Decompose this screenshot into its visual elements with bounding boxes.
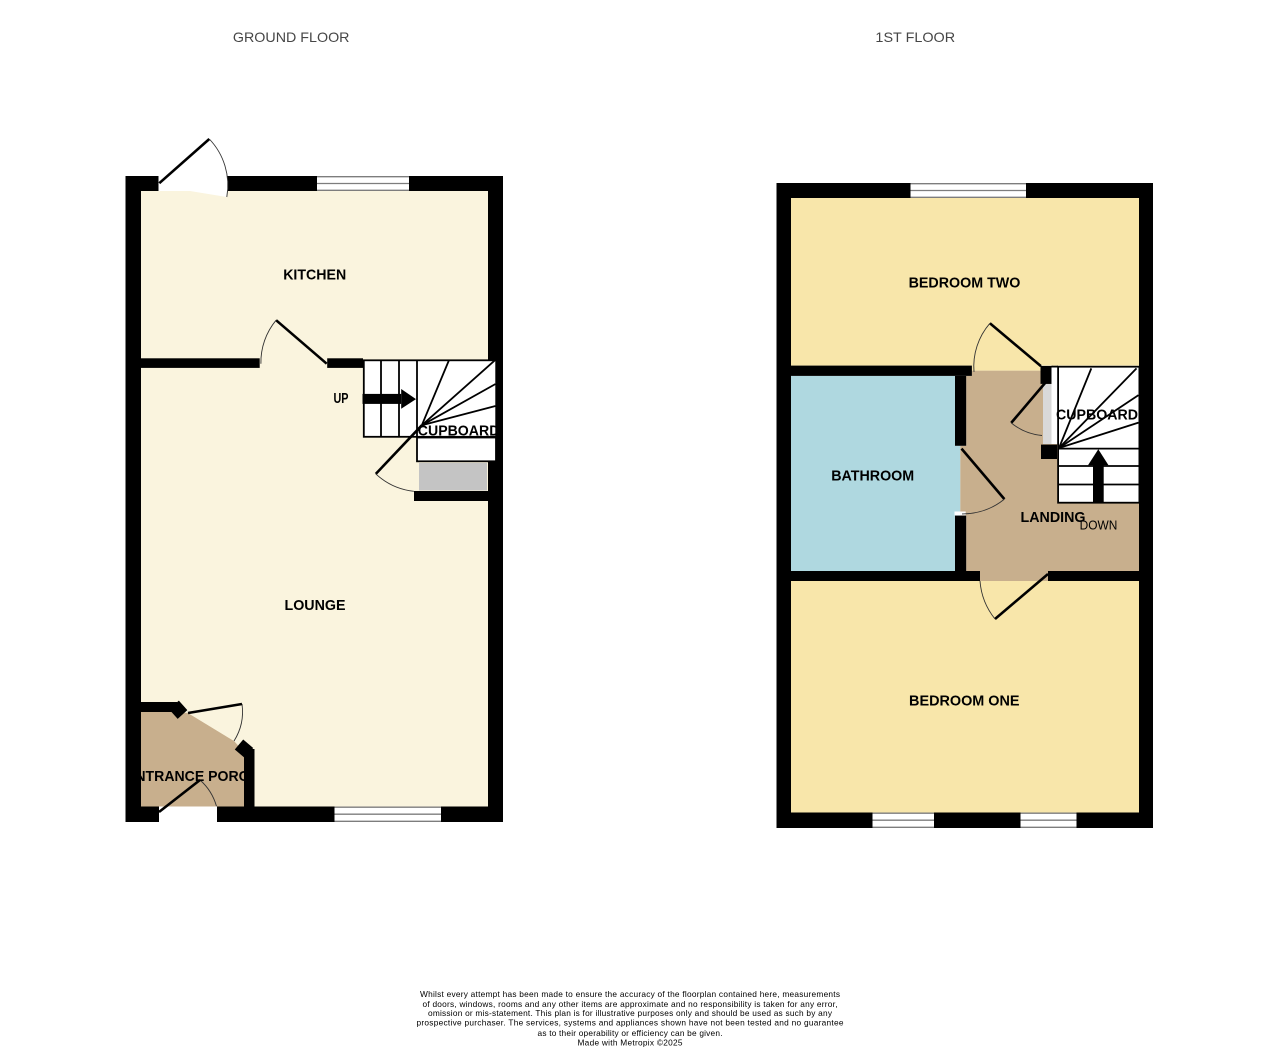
svg-text:KITCHEN: KITCHEN <box>283 267 346 284</box>
svg-text:CUPBOARD: CUPBOARD <box>418 423 500 440</box>
svg-text:1ST FLOOR: 1ST FLOOR <box>875 29 955 45</box>
svg-text:GROUND FLOOR: GROUND FLOOR <box>233 29 350 45</box>
svg-text:prospective purchaser. The ser: prospective purchaser. The services, sys… <box>417 1018 844 1028</box>
svg-text:BATHROOM: BATHROOM <box>831 467 914 484</box>
svg-text:LOUNGE: LOUNGE <box>285 597 346 614</box>
svg-text:omission or mis-statement. Thi: omission or mis-statement. This plan is … <box>428 1008 833 1018</box>
svg-text:BEDROOM TWO: BEDROOM TWO <box>909 274 1021 291</box>
svg-text:Made with Metropix ©2025: Made with Metropix ©2025 <box>578 1038 683 1048</box>
svg-text:LANDING: LANDING <box>1021 509 1086 526</box>
svg-text:DOWN: DOWN <box>1080 517 1118 532</box>
svg-text:CUPBOARD: CUPBOARD <box>1056 406 1138 423</box>
svg-text:BEDROOM ONE: BEDROOM ONE <box>909 692 1020 709</box>
svg-text:ENTRANCE PORCH: ENTRANCE PORCH <box>126 768 259 785</box>
svg-text:Whilst every attempt has been: Whilst every attempt has been made to en… <box>420 989 840 999</box>
svg-text:UP: UP <box>334 390 349 407</box>
